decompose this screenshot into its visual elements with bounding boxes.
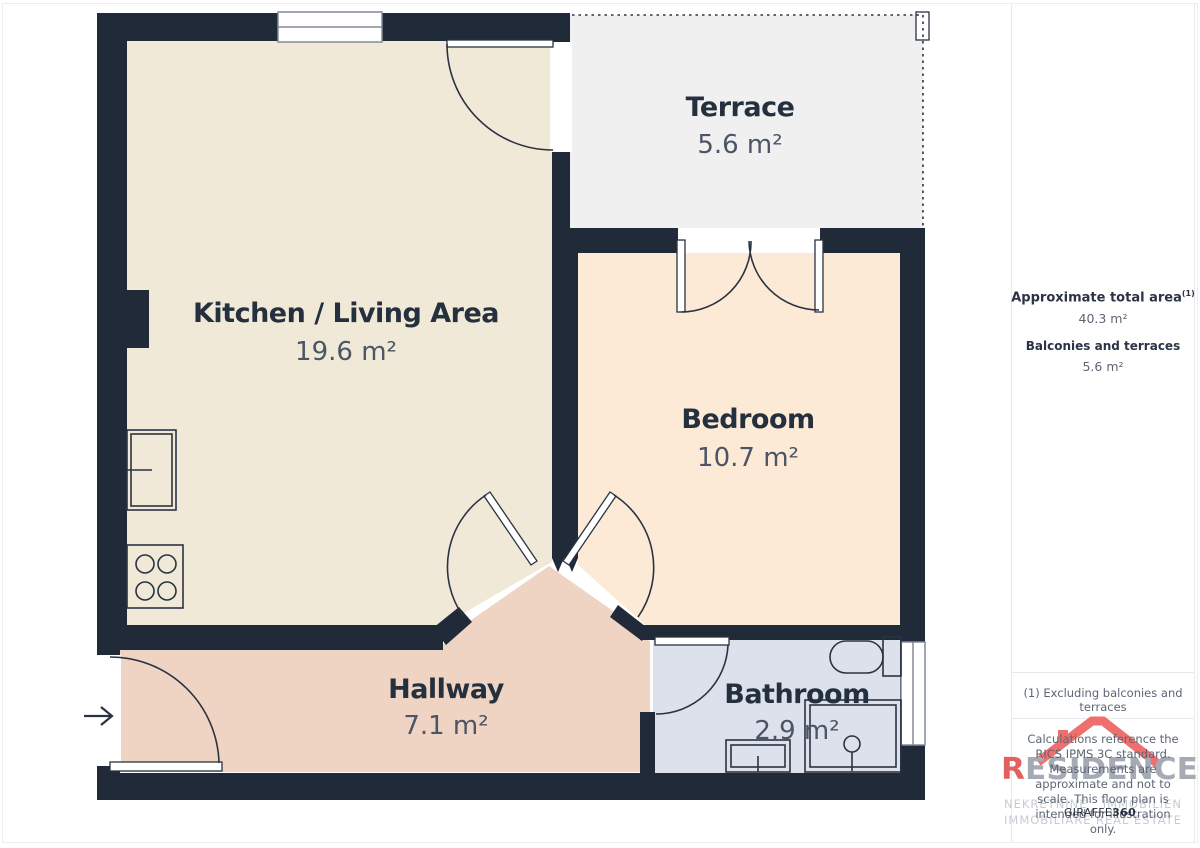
room-area-hallway: 7.1 m² xyxy=(403,711,488,741)
balconies-label: Balconies and terraces xyxy=(1011,339,1195,353)
sidebar-left-border xyxy=(1011,3,1012,842)
sidebar-divider-1 xyxy=(1011,672,1195,673)
room-area-terrace: 5.6 m² xyxy=(697,130,782,160)
room-label-terrace: Terrace xyxy=(686,92,795,123)
balconies-value: 5.6 m² xyxy=(1011,359,1195,374)
total-area-label: Approximate total area(1) xyxy=(1011,289,1195,305)
room-area-kitchen-living: 19.6 m² xyxy=(295,337,397,367)
room-label-bedroom: Bedroom xyxy=(681,404,814,435)
room-label-kitchen-living: Kitchen / Living Area xyxy=(193,298,499,329)
giraffe360-name: GIRAFFE xyxy=(1064,806,1112,819)
giraffe360-brand: GIRAFFE360 xyxy=(1040,806,1160,819)
total-area-footnote-ref: (1) xyxy=(1182,289,1195,298)
room-area-bathroom: 2.9 m² xyxy=(754,716,839,746)
room-area-bedroom: 10.7 m² xyxy=(697,443,799,473)
floorplan-drawing: Kitchen / Living Area 19.6 m² Terrace 5.… xyxy=(0,0,1200,848)
room-bedroom-floor xyxy=(578,253,900,625)
sidebar-right-border xyxy=(1194,3,1195,842)
room-label-bathroom: Bathroom xyxy=(724,679,869,710)
total-area-value: 40.3 m² xyxy=(1011,311,1195,326)
room-label-hallway: Hallway xyxy=(388,674,505,705)
giraffe360-suffix: 360 xyxy=(1112,806,1136,819)
total-area-label-text: Approximate total area xyxy=(1011,290,1182,305)
footnote: (1) Excluding balconies and terraces xyxy=(1011,686,1195,714)
window-top xyxy=(278,12,382,42)
window-right xyxy=(901,642,925,745)
disclaimer: Calculations reference the RICS IPMS 3C … xyxy=(1021,732,1185,837)
floorplan-page: Kitchen / Living Area 19.6 m² Terrace 5.… xyxy=(0,0,1200,848)
